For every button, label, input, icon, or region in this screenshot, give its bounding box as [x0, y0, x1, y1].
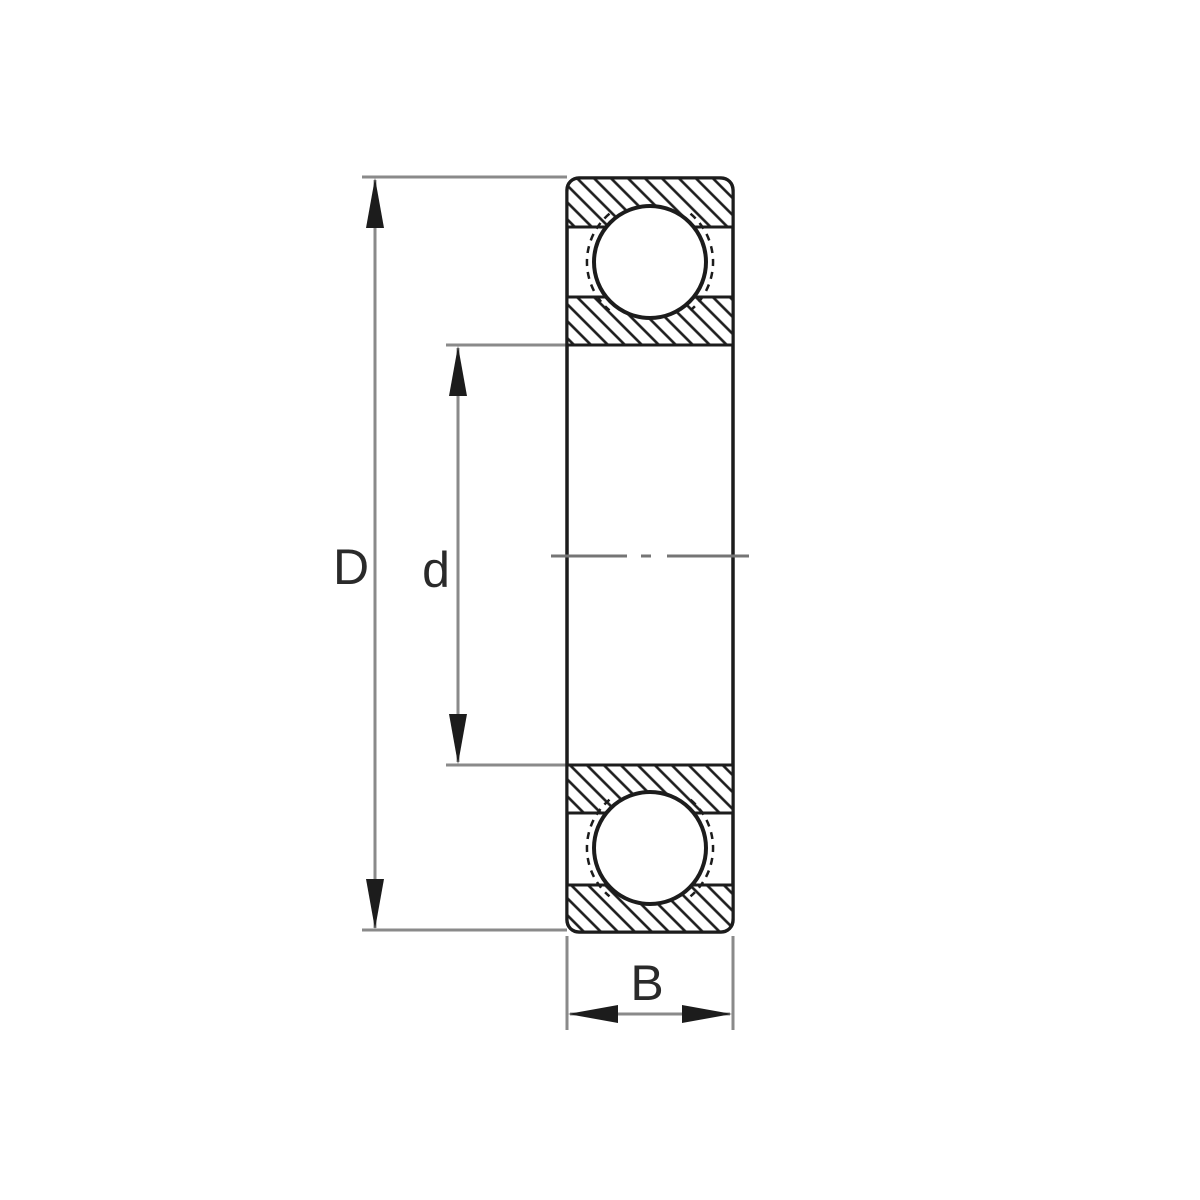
- bearing-body: [551, 178, 749, 932]
- arrow-up-icon: [449, 346, 467, 396]
- ball-top: [594, 206, 706, 318]
- arrow-left-icon: [568, 1005, 618, 1023]
- width-label: B: [630, 955, 663, 1011]
- dimension-width: B: [567, 936, 733, 1030]
- bearing-diagram-page: D d B: [0, 0, 1200, 1200]
- outer-diameter-label: D: [333, 539, 369, 595]
- bore-diameter-label: d: [422, 542, 450, 598]
- arrow-right-icon: [682, 1005, 732, 1023]
- dimension-bore-diameter: d: [422, 345, 567, 765]
- arrow-up-icon: [366, 178, 384, 228]
- arrow-down-icon: [449, 714, 467, 764]
- arrow-down-icon: [366, 879, 384, 929]
- ball-bottom: [594, 792, 706, 904]
- dimension-outer-diameter: D: [333, 177, 567, 930]
- bearing-cross-section-drawing: D d B: [0, 0, 1200, 1200]
